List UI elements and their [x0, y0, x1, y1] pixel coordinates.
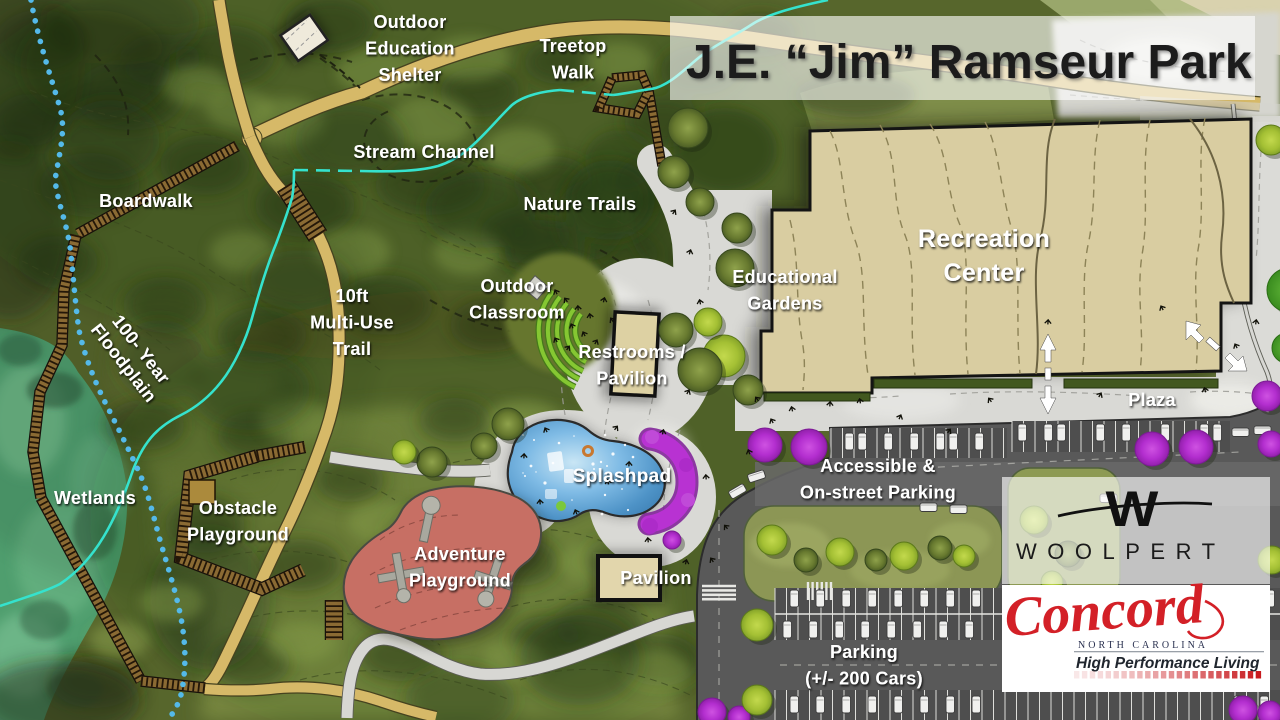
- svg-text:(+/- 200 Cars): (+/- 200 Cars): [805, 669, 923, 689]
- svg-text:Playground: Playground: [409, 571, 511, 591]
- svg-text:Parking: Parking: [830, 642, 898, 662]
- svg-text:Plaza: Plaza: [1128, 390, 1176, 410]
- svg-text:Center: Center: [944, 259, 1025, 287]
- svg-text:Gardens: Gardens: [747, 294, 822, 314]
- svg-text:Trail: Trail: [333, 339, 372, 359]
- svg-text:Multi-Use: Multi-Use: [310, 313, 394, 333]
- svg-text:Education: Education: [365, 39, 455, 59]
- svg-text:10ft: 10ft: [335, 286, 368, 306]
- svg-text:Restrooms /: Restrooms /: [578, 342, 685, 362]
- svg-text:Stream Channel: Stream Channel: [353, 142, 494, 162]
- svg-text:NORTH CAROLINA: NORTH CAROLINA: [1078, 640, 1208, 651]
- svg-text:Educational: Educational: [732, 267, 837, 287]
- svg-text:Pavilion: Pavilion: [596, 369, 667, 389]
- svg-text:On-street Parking: On-street Parking: [800, 483, 956, 503]
- svg-text:W: W: [1106, 482, 1160, 538]
- svg-text:Playground: Playground: [187, 525, 289, 545]
- svg-text:Treetop: Treetop: [539, 36, 606, 56]
- svg-text:Outdoor: Outdoor: [480, 276, 553, 296]
- svg-text:Accessible &: Accessible &: [820, 456, 936, 476]
- svg-text:High Performance Living: High Performance Living: [1076, 655, 1260, 672]
- svg-text:Shelter: Shelter: [378, 65, 441, 85]
- svg-text:Splashpad: Splashpad: [573, 466, 672, 487]
- svg-text:WOOLPERT: WOOLPERT: [1016, 539, 1226, 564]
- svg-text:Outdoor: Outdoor: [373, 12, 446, 32]
- svg-text:Obstacle: Obstacle: [199, 498, 277, 518]
- svg-text:Recreation: Recreation: [918, 225, 1050, 253]
- svg-text:Classroom: Classroom: [469, 303, 565, 323]
- svg-text:Wetlands: Wetlands: [54, 488, 136, 508]
- svg-text:Pavilion: Pavilion: [620, 568, 691, 588]
- svg-text:Boardwalk: Boardwalk: [99, 191, 193, 211]
- svg-text:Adventure: Adventure: [414, 544, 506, 564]
- svg-text:Nature Trails: Nature Trails: [524, 194, 637, 214]
- svg-text:J.E. “Jim” Ramseur Park: J.E. “Jim” Ramseur Park: [686, 36, 1252, 89]
- svg-text:Walk: Walk: [552, 63, 595, 83]
